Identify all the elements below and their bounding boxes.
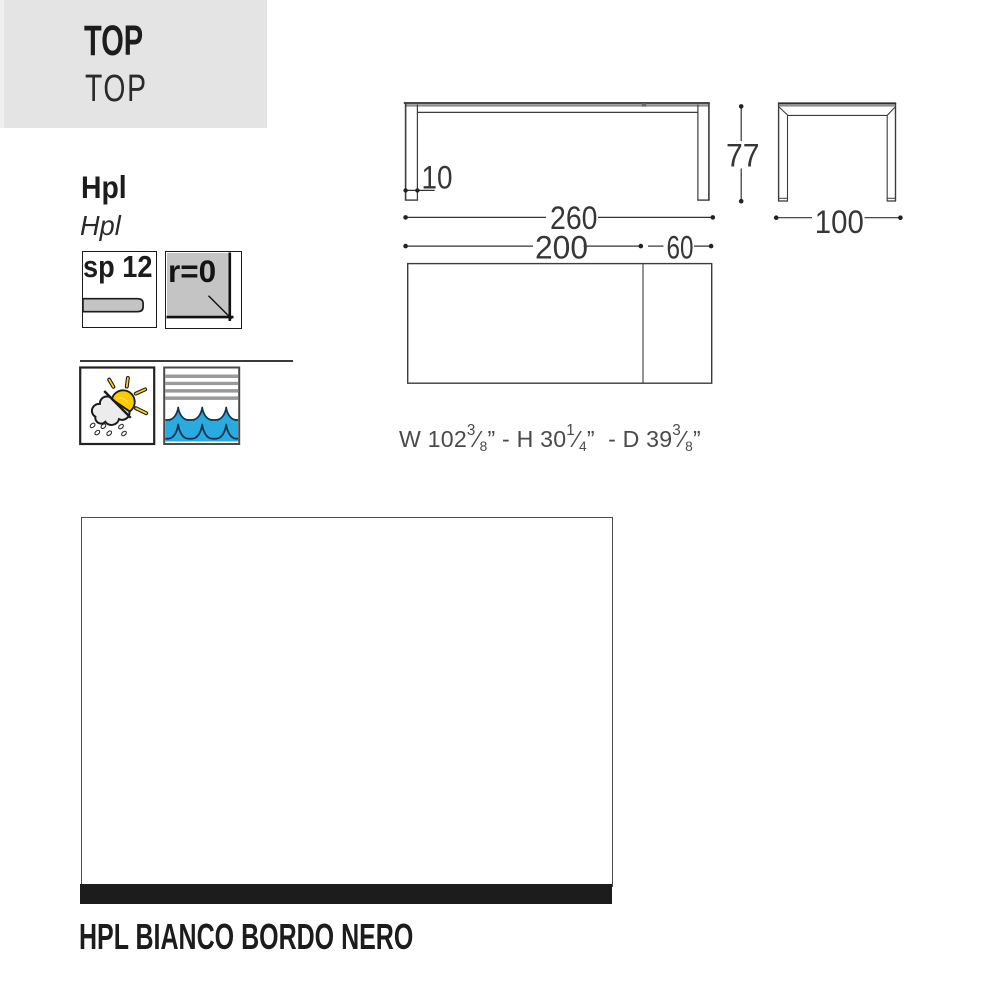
svg-text:77: 77 <box>726 137 760 173</box>
svg-text:60: 60 <box>667 230 694 266</box>
svg-text:10: 10 <box>422 160 453 196</box>
svg-text:100: 100 <box>815 204 864 240</box>
svg-text:200: 200 <box>535 230 588 266</box>
